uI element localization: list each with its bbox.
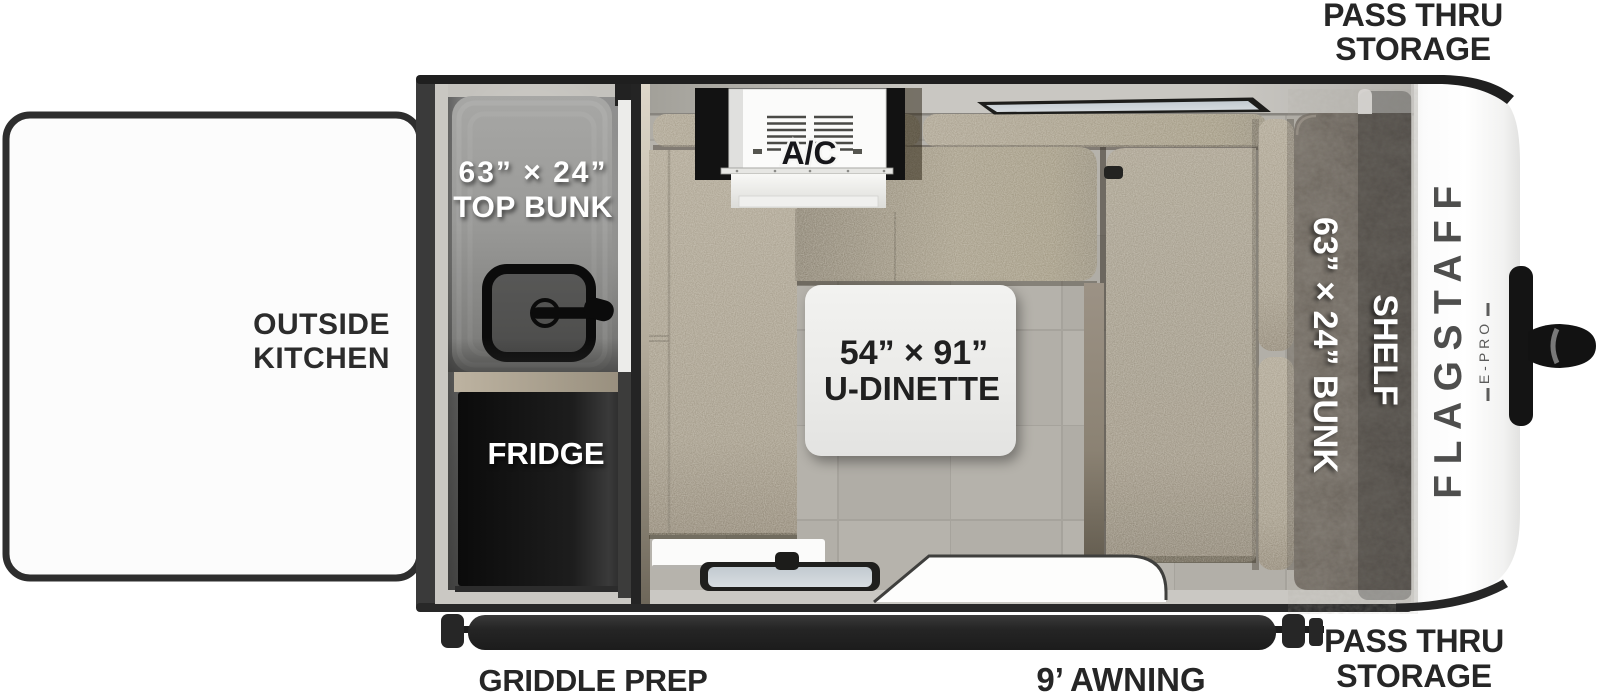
svg-text:54” × 91”: 54” × 91” [840,334,988,372]
svg-text:63” × 24” BUNK: 63” × 24” BUNK [1306,217,1344,473]
svg-text:FRIDGE: FRIDGE [487,436,604,471]
svg-text:SHELF: SHELF [1366,294,1404,405]
svg-text:PASS THRU: PASS THRU [1323,0,1503,33]
svg-text:PASS THRU: PASS THRU [1324,623,1504,659]
svg-text:STORAGE: STORAGE [1336,658,1492,693]
svg-text:GRIDDLE PREP: GRIDDLE PREP [479,663,708,693]
svg-text:63” × 24”: 63” × 24” [459,156,608,189]
svg-text:KITCHEN: KITCHEN [253,342,390,375]
svg-text:U-DINETTE: U-DINETTE [824,370,1000,407]
svg-text:A/C: A/C [781,135,836,171]
svg-text:TOP BUNK: TOP BUNK [453,191,613,224]
svg-text:OUTSIDE: OUTSIDE [253,308,390,341]
svg-text:E-PRO: E-PRO [1476,320,1492,384]
svg-text:9’ AWNING: 9’ AWNING [1036,661,1205,693]
svg-text:STORAGE: STORAGE [1335,31,1491,67]
svg-text:FLAGSTAFF: FLAGSTAFF [1427,175,1470,498]
